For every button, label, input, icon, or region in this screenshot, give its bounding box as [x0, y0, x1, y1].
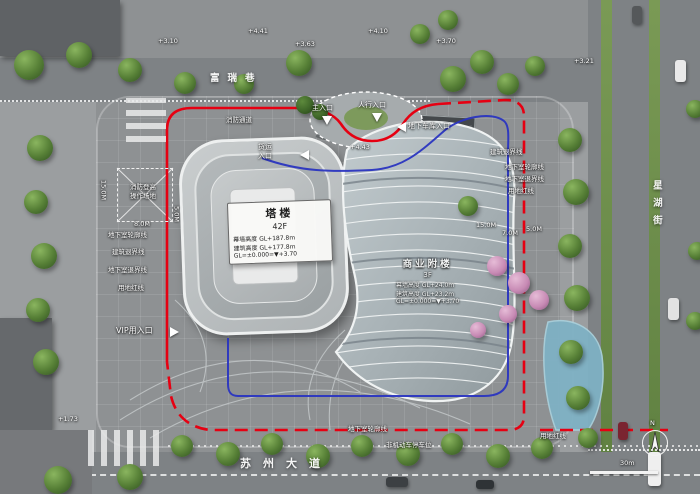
tree	[14, 50, 44, 80]
fire-area-label-line2: 操作场地	[130, 193, 156, 200]
spot-elevation: +4.43	[350, 144, 370, 151]
tower-info-card: 塔楼 42F 幕墙高度 GL+187.8m 建筑高度 GL+177.8m GL=…	[227, 199, 333, 265]
pink-tree	[499, 305, 517, 323]
crosswalk-top-left	[126, 98, 166, 142]
tree	[686, 100, 700, 118]
freight-entrance-label-line1: 货运	[258, 143, 272, 151]
garage-entrance-arrow	[397, 122, 406, 132]
dim-fire-width: 8.0M	[134, 221, 150, 228]
left-line-label-2: 建筑退界线	[112, 249, 145, 256]
tree	[117, 464, 143, 490]
tower-floors: 42F	[233, 220, 327, 232]
pink-tree	[529, 290, 549, 310]
tree	[351, 435, 373, 457]
tree	[410, 24, 430, 44]
tower-name: 塔楼	[232, 203, 327, 222]
tree	[558, 128, 582, 152]
north-compass	[642, 430, 668, 456]
tree	[686, 312, 700, 330]
tree	[440, 66, 466, 92]
tree	[216, 442, 240, 466]
adjacent-building-topleft	[0, 0, 120, 56]
bottom-road-lane-marking	[90, 474, 700, 476]
scale-bar	[590, 471, 658, 474]
scale-label: 30m	[620, 460, 635, 467]
spot-elevation: +3.70	[436, 38, 456, 45]
main-entrance-label: 主入口	[312, 104, 333, 112]
fire-lane-label: 消防通道	[226, 117, 252, 124]
tree	[688, 242, 700, 260]
right-line-label-4: 用地红线	[508, 188, 534, 195]
car	[386, 477, 408, 487]
car	[668, 298, 679, 320]
annex-name: 商业附楼	[396, 256, 459, 270]
sunken-stair-structure	[478, 156, 494, 198]
dim-right-c: 5.0M	[526, 226, 542, 233]
tree	[33, 349, 59, 375]
annex-curtain-height: 幕墙高度 GL+24.0m	[396, 280, 459, 289]
tree	[497, 73, 519, 95]
dim-right-b: 7.0M	[502, 230, 518, 237]
pedestrian-entrance-label: 人行入口	[358, 101, 386, 109]
pink-tree	[487, 256, 507, 276]
tree	[559, 340, 583, 364]
bottom-line-label-1: 地下室轮廓线	[348, 426, 387, 433]
tree	[118, 58, 142, 82]
tree	[261, 433, 283, 455]
tree	[486, 444, 510, 468]
tree	[525, 56, 545, 76]
tree	[26, 298, 50, 322]
right-road-median-1	[601, 0, 612, 494]
annex-building-height: 建筑高度 GL+23.2m	[396, 289, 459, 298]
dim-right-a: 15.0M	[476, 222, 496, 229]
site-plan-rendering: 富瑞巷 苏州大道 星湖街 塔楼 42F 幕墙高度 GL+187.8m 建筑高度 …	[0, 0, 700, 494]
left-line-label-3: 地下室退界线	[108, 267, 147, 274]
tree	[27, 135, 53, 161]
crosswalk-bottom-left	[88, 430, 160, 466]
pink-tree	[508, 272, 530, 294]
spot-elevation: +4.10	[368, 28, 388, 35]
dim-side-gap: 5.0M	[172, 206, 179, 222]
tree	[566, 386, 590, 410]
left-line-label-4: 用地红线	[118, 285, 144, 292]
dim-fire-height: 15.0M	[99, 180, 106, 200]
tree	[564, 285, 590, 311]
garage-entrance-label: 地下车库入口	[408, 122, 450, 130]
car	[618, 422, 628, 440]
street-name-right: 星湖街	[650, 180, 661, 233]
tree	[66, 42, 92, 68]
main-entrance-arrow	[322, 116, 332, 125]
bus	[648, 452, 661, 486]
freight-entrance-arrow	[300, 150, 309, 160]
tree	[458, 196, 478, 216]
car	[476, 480, 494, 489]
spot-elevation: +4.41	[248, 28, 268, 35]
annex-floors: 3F	[396, 271, 459, 279]
street-name-top: 富瑞巷	[210, 74, 263, 85]
freight-entrance-label-line2: 入口	[258, 152, 272, 160]
spot-elevation: +3.63	[295, 41, 315, 48]
right-line-label-3: 地下室退界线	[505, 176, 544, 183]
spot-elevation: +3.21	[574, 58, 594, 65]
pedestrian-entrance-arrow	[372, 113, 382, 122]
annex-info-card: 商业附楼 3F 幕墙高度 GL+24.0m 建筑高度 GL+23.2m GL=±…	[396, 256, 459, 305]
vip-entrance-label: VIP用入口	[116, 326, 153, 335]
tree	[286, 50, 312, 76]
tree	[563, 179, 589, 205]
fire-area-label-line1: 消防登高	[130, 184, 156, 191]
car	[632, 6, 642, 24]
annex-datum: GL=±0.000=▼+3.70	[396, 298, 459, 305]
pink-tree	[470, 322, 486, 338]
spot-elevation: +1.73	[58, 416, 78, 423]
tree	[44, 466, 72, 494]
compass-north-label: N	[650, 420, 655, 427]
tree	[470, 50, 494, 74]
bottom-line-label-2: 用地红线	[540, 433, 566, 440]
right-line-label-1: 建筑退界线	[490, 149, 523, 156]
street-name-bottom: 苏州大道	[240, 458, 332, 471]
tree	[558, 234, 582, 258]
vip-entrance-arrow	[170, 327, 179, 337]
spot-elevation: +3.10	[158, 38, 178, 45]
car	[675, 60, 686, 82]
tree	[171, 435, 193, 457]
tree	[441, 433, 463, 455]
right-line-label-2: 地下室轮廓线	[505, 164, 544, 171]
tree	[31, 243, 57, 269]
tree	[578, 428, 598, 448]
tree	[24, 190, 48, 214]
tree	[438, 10, 458, 30]
left-line-label-1: 地下室轮廓线	[108, 232, 147, 239]
bike-parking-label: 非机动车停车位	[386, 442, 432, 449]
tree	[174, 72, 196, 94]
